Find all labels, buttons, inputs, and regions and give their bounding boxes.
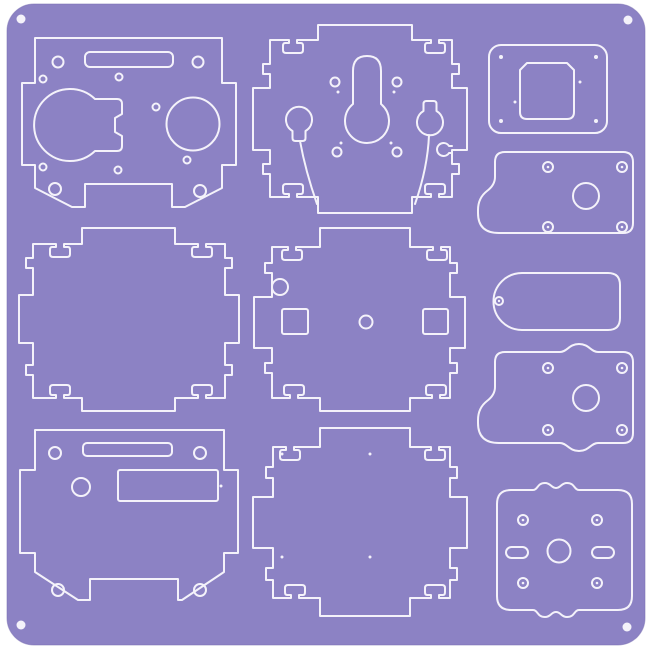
corner-mark bbox=[499, 55, 503, 59]
drill-mark bbox=[596, 582, 599, 585]
registration-dot bbox=[17, 621, 26, 630]
drill-mark bbox=[547, 367, 550, 370]
corner-mark bbox=[499, 119, 503, 123]
pin-mark bbox=[514, 101, 517, 104]
pin-mark bbox=[281, 556, 284, 559]
pin-mark bbox=[340, 142, 343, 145]
pin-mark bbox=[337, 91, 340, 94]
drill-mark bbox=[547, 166, 550, 169]
material-sheet bbox=[7, 4, 645, 645]
pin-mark bbox=[281, 453, 284, 456]
cutting-sheet-canvas bbox=[0, 0, 652, 649]
corner-mark bbox=[594, 119, 598, 123]
drill-mark bbox=[522, 582, 525, 585]
drill-mark bbox=[522, 519, 525, 522]
drill-mark bbox=[621, 226, 624, 229]
registration-dot bbox=[624, 16, 633, 25]
pin-mark bbox=[579, 81, 582, 84]
drill-mark bbox=[596, 519, 599, 522]
pin-mark bbox=[369, 453, 372, 456]
registration-dot bbox=[623, 623, 632, 632]
drill-mark bbox=[621, 429, 624, 432]
pin-mark bbox=[220, 485, 223, 488]
pin-mark bbox=[369, 556, 372, 559]
pin-mark bbox=[393, 91, 396, 94]
drill-mark bbox=[621, 166, 624, 169]
laser-cut-layout-preview bbox=[0, 0, 652, 649]
drill-mark bbox=[498, 300, 500, 302]
drill-mark bbox=[547, 226, 550, 229]
registration-dot bbox=[17, 15, 26, 24]
pin-mark bbox=[390, 142, 393, 145]
drill-mark bbox=[547, 429, 550, 432]
corner-mark bbox=[594, 55, 598, 59]
drill-mark bbox=[621, 367, 624, 370]
